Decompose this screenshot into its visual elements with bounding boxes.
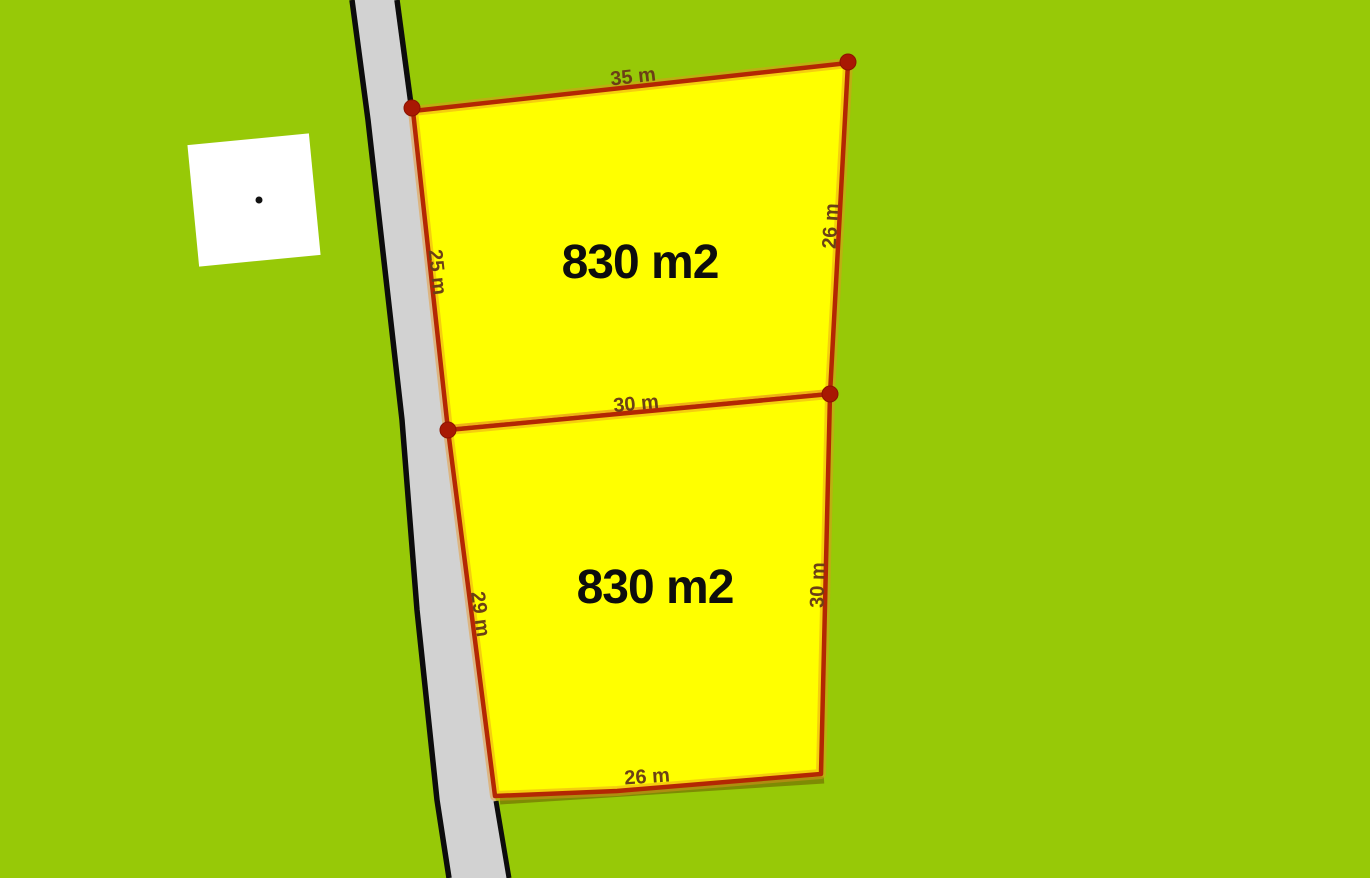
building-footprint (187, 133, 320, 266)
dimension-label-divider: 30 m (612, 391, 659, 417)
area-label-lower: 830 m2 (577, 561, 734, 614)
dimension-label-lower-right: 30 m (807, 562, 830, 608)
parcel-map: 35 m 25 m 26 m 30 m 29 m 30 m 26 m 830 m… (0, 0, 1370, 878)
corner-dot-middle-right (822, 386, 838, 402)
dimension-label-upper-right: 26 m (819, 203, 844, 250)
dimension-label-bottom: 26 m (624, 764, 671, 789)
area-label-upper: 830 m2 (562, 236, 719, 289)
corner-dot-top-left (404, 100, 420, 116)
corner-dot-top-right (840, 54, 856, 70)
corner-dot-middle-left (440, 422, 456, 438)
building-center-dot (256, 197, 263, 204)
